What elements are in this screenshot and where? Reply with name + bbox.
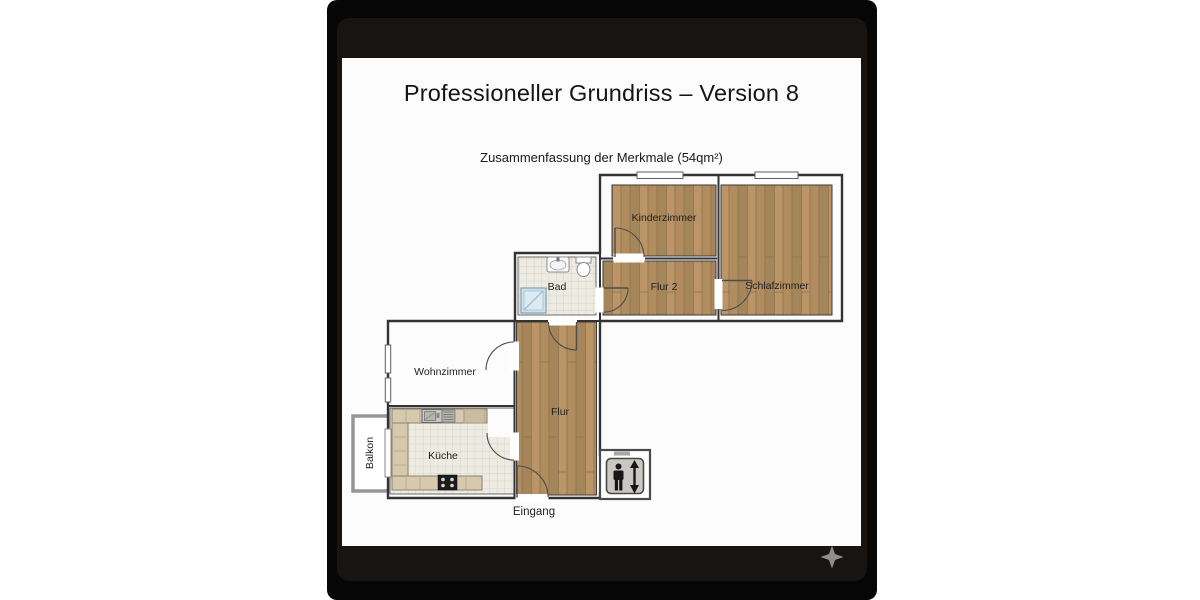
toilet-icon bbox=[576, 257, 591, 277]
label-eingang: Eingang bbox=[513, 506, 555, 518]
shower-icon bbox=[521, 288, 546, 313]
sink-icon bbox=[547, 257, 569, 272]
label-schlafzimmer: Schlafzimmer bbox=[745, 280, 809, 292]
sparkle-icon bbox=[820, 545, 844, 569]
label-bad: Bad bbox=[548, 281, 567, 293]
window-wohnzimmer-1 bbox=[385, 345, 390, 373]
window-schlafzimmer bbox=[755, 172, 798, 179]
viewer-panel: Professioneller Grundriss – Version 8 Zu… bbox=[327, 0, 877, 600]
cabinet-block bbox=[464, 409, 485, 423]
room-floors bbox=[390, 185, 832, 495]
label-kueche: Küche bbox=[428, 450, 458, 462]
drainer-icon bbox=[442, 410, 455, 422]
window-wohnzimmer-2 bbox=[385, 378, 390, 402]
viewer-card: Professioneller Grundriss – Version 8 Zu… bbox=[337, 18, 867, 581]
label-wohnzimmer: Wohnzimmer bbox=[414, 366, 476, 378]
kitchen-sink-icon bbox=[422, 410, 442, 423]
window-kinderzimmer bbox=[637, 172, 683, 179]
label-kinderzimmer: Kinderzimmer bbox=[632, 212, 697, 224]
stove-icon bbox=[438, 475, 457, 490]
screenshot-root: { "document": { "title": "Professionelle… bbox=[0, 0, 1200, 600]
label-balkon: Balkon bbox=[364, 437, 376, 469]
balcony-door bbox=[385, 429, 391, 477]
floor-plan: Kinderzimmer Schlafzimmer Flur 2 Bad Woh… bbox=[342, 52, 861, 546]
label-flur: Flur bbox=[551, 406, 570, 418]
schlafzimmer-floor bbox=[721, 185, 832, 315]
elevator bbox=[598, 450, 651, 499]
label-flur2: Flur 2 bbox=[651, 281, 678, 293]
floorplan-page: Professioneller Grundriss – Version 8 Zu… bbox=[342, 58, 861, 546]
